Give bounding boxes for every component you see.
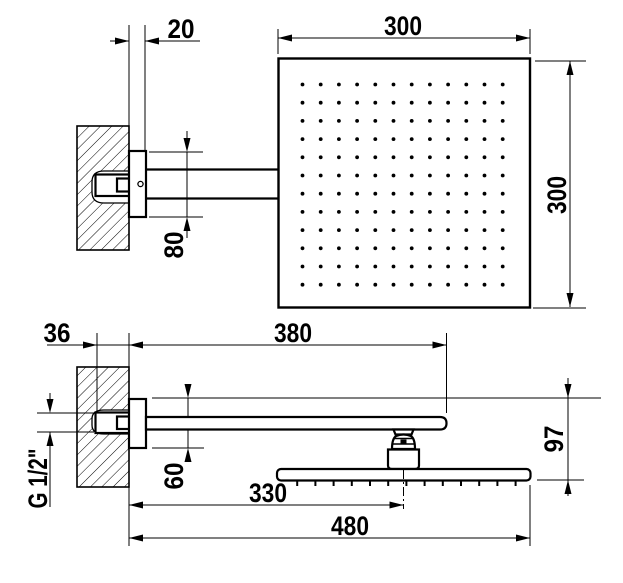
nozzle-dot	[428, 283, 432, 287]
nozzle-dot	[392, 155, 396, 159]
nozzle-dot	[446, 283, 450, 287]
nozzle-dot	[428, 265, 432, 269]
nozzle-dot	[301, 192, 305, 196]
nozzle-dot	[355, 283, 359, 287]
nozzle-dot	[355, 83, 359, 87]
technical-drawing: 20 300 300 80	[0, 0, 623, 578]
nozzle-dot	[355, 174, 359, 178]
nozzle-dot	[373, 246, 377, 250]
nozzle-dot	[483, 192, 487, 196]
nozzle-dot	[464, 246, 468, 250]
nozzle-dot	[319, 137, 323, 141]
nozzle-dot	[483, 283, 487, 287]
nozzle-dot	[337, 192, 341, 196]
nozzle-dot	[319, 210, 323, 214]
nozzle-dot	[373, 155, 377, 159]
nozzle-dot	[301, 101, 305, 105]
nozzle-dot	[483, 210, 487, 214]
nozzle-dot	[337, 174, 341, 178]
nozzle-dot	[501, 210, 505, 214]
nozzle-dot	[392, 283, 396, 287]
nozzle-dot	[464, 119, 468, 123]
nozzle-dot	[501, 283, 505, 287]
nozzle-dot	[446, 119, 450, 123]
nozzle-dot	[355, 228, 359, 232]
nozzle-dot	[319, 119, 323, 123]
nozzle-dot	[319, 283, 323, 287]
nozzle-dot	[428, 119, 432, 123]
nozzle-dot	[464, 137, 468, 141]
nozzle-dot	[337, 265, 341, 269]
nozzle-dot	[446, 174, 450, 178]
nozzle-dot	[501, 265, 505, 269]
nozzle-dot	[446, 192, 450, 196]
nozzle-dot	[337, 246, 341, 250]
nozzle-dot	[501, 228, 505, 232]
nozzle-dot	[355, 119, 359, 123]
nozzle-dot	[483, 246, 487, 250]
nozzle-dot	[355, 137, 359, 141]
nozzle-dot	[355, 246, 359, 250]
nozzle-dot	[483, 228, 487, 232]
dim-label-head-width: 300	[384, 11, 422, 41]
dim-label-total-reach: 480	[331, 511, 369, 541]
nozzle-dot	[410, 265, 414, 269]
nozzle-dot	[483, 83, 487, 87]
dim-escutcheon-width: 80	[149, 131, 203, 259]
nozzle-dot	[410, 101, 414, 105]
nozzle-dot	[483, 155, 487, 159]
nozzle-dot	[483, 101, 487, 105]
nozzle-dot	[373, 101, 377, 105]
nozzle-dot	[483, 265, 487, 269]
nozzle-dot	[446, 137, 450, 141]
nozzle-dot	[337, 228, 341, 232]
dim-head-height: 300	[533, 61, 586, 308]
nozzle-dot	[446, 101, 450, 105]
nozzle-dot	[483, 174, 487, 178]
nozzle-dot	[373, 119, 377, 123]
nozzle-dot	[392, 174, 396, 178]
nozzle-dot	[319, 265, 323, 269]
nozzle-dot	[501, 174, 505, 178]
nozzle-dot	[319, 228, 323, 232]
nozzle-dot	[373, 192, 377, 196]
nozzle-dot	[373, 83, 377, 87]
nozzle-dot	[464, 228, 468, 232]
nozzle-dot	[464, 155, 468, 159]
swivel-connector	[388, 430, 419, 470]
nozzle-dot	[301, 174, 305, 178]
dim-label-thread: G 1/2"	[23, 449, 53, 509]
dim-escutcheon-height: 60	[152, 384, 204, 490]
escutcheon-screw	[138, 181, 143, 186]
nozzle-dot	[464, 283, 468, 287]
nozzle-dot	[410, 210, 414, 214]
nozzle-dot	[446, 155, 450, 159]
nozzle-dot	[301, 137, 305, 141]
nozzle-dot	[301, 155, 305, 159]
nozzle-dot	[355, 210, 359, 214]
nozzle-dot	[410, 283, 414, 287]
nozzle-dot	[428, 137, 432, 141]
nozzle-dot	[337, 210, 341, 214]
nozzle-dot	[428, 210, 432, 214]
top-view: 20 300 300 80	[77, 11, 586, 308]
nozzle-dot	[337, 101, 341, 105]
nozzle-dot	[355, 192, 359, 196]
nozzle-dot	[446, 83, 450, 87]
nozzle-dot	[392, 119, 396, 123]
nozzle-dot	[446, 246, 450, 250]
nozzle-dot	[319, 246, 323, 250]
nozzle-dot	[501, 101, 505, 105]
nozzle-dot	[301, 210, 305, 214]
nozzle-dot	[410, 137, 414, 141]
nozzle-dot	[319, 155, 323, 159]
dim-total-reach: 480	[129, 485, 530, 546]
dim-label-wall-offset: 20	[168, 14, 195, 44]
nozzle-dot	[410, 155, 414, 159]
nozzle-dot	[301, 265, 305, 269]
nozzle-dot	[319, 174, 323, 178]
nozzle-dot	[464, 192, 468, 196]
nozzle-dot	[410, 174, 414, 178]
side-view: 36 380 60 G 1/2"	[23, 318, 601, 546]
dim-label-drop-height: 97	[539, 426, 569, 453]
nozzle-dot	[428, 83, 432, 87]
dim-label-recess-depth: 36	[44, 318, 71, 348]
supply-fitting-end-top	[117, 179, 130, 192]
nozzle-dot	[464, 174, 468, 178]
nozzle-dot	[501, 137, 505, 141]
nozzle-dot	[392, 101, 396, 105]
nozzle-dot	[319, 101, 323, 105]
nozzle-dot	[373, 210, 377, 214]
nozzle-dot	[483, 119, 487, 123]
nozzle-dot	[410, 192, 414, 196]
shower-arm-side	[146, 417, 447, 430]
nozzle-dot	[464, 265, 468, 269]
shower-head-face	[279, 59, 531, 308]
nozzle-dot	[464, 101, 468, 105]
dim-label-head-height: 300	[542, 176, 572, 214]
nozzle-dot	[501, 119, 505, 123]
nozzle-dot	[392, 210, 396, 214]
nozzle-dot	[337, 155, 341, 159]
nozzle-dot	[301, 246, 305, 250]
nozzle-dot	[501, 246, 505, 250]
nozzle-dot	[501, 192, 505, 196]
shower-arm-top	[146, 170, 279, 199]
nozzle-dot	[337, 283, 341, 287]
escutcheon-side	[129, 399, 146, 448]
nozzle-dot	[428, 101, 432, 105]
nozzle-dot	[355, 265, 359, 269]
nozzle-dot	[501, 155, 505, 159]
nozzle-dot	[428, 246, 432, 250]
dim-label-center-offset: 330	[249, 478, 287, 508]
dim-drop-height: 97	[537, 378, 584, 496]
nozzle-dot	[319, 83, 323, 87]
nozzle-dot	[337, 119, 341, 123]
nozzle-dot	[337, 137, 341, 141]
nozzle-dot	[410, 246, 414, 250]
nozzle-dot	[301, 83, 305, 87]
nozzle-dot	[301, 228, 305, 232]
nozzle-dot	[301, 119, 305, 123]
nozzle-dot	[501, 83, 505, 87]
nozzle-dot	[410, 83, 414, 87]
nozzle-dot	[446, 228, 450, 232]
nozzle-dot	[464, 210, 468, 214]
nozzle-dot	[483, 137, 487, 141]
nozzle-dot	[392, 192, 396, 196]
nozzle-dot	[319, 192, 323, 196]
nozzle-dot	[355, 101, 359, 105]
nozzle-dot	[392, 246, 396, 250]
nozzle-dot	[373, 174, 377, 178]
nozzle-dot	[355, 155, 359, 159]
nozzle-dot	[410, 228, 414, 232]
nozzle-dot	[464, 83, 468, 87]
nozzle-dot	[446, 210, 450, 214]
dim-label-escutcheon-height: 60	[159, 463, 189, 490]
nozzle-dot	[446, 265, 450, 269]
nozzle-dot	[410, 119, 414, 123]
ball-joint-detail	[401, 440, 407, 445]
nozzle-dot	[373, 265, 377, 269]
nozzle-dot	[428, 155, 432, 159]
nozzle-dot	[392, 228, 396, 232]
dim-label-arm-length: 380	[274, 318, 312, 348]
nozzle-dot	[301, 283, 305, 287]
nozzle-dot	[392, 83, 396, 87]
nozzle-dot	[392, 265, 396, 269]
dim-label-escutcheon-width: 80	[159, 232, 189, 259]
dim-head-width: 300	[278, 11, 530, 54]
nozzle-dot	[428, 192, 432, 196]
connector-body	[388, 450, 419, 470]
nozzle-dot	[373, 137, 377, 141]
drawing-page: 20 300 300 80	[0, 0, 623, 578]
nozzle-dot	[392, 137, 396, 141]
nozzle-dot	[373, 228, 377, 232]
supply-fitting-end-side	[117, 417, 130, 430]
nozzle-dot	[428, 228, 432, 232]
nozzle-dot	[428, 174, 432, 178]
nozzle-dot	[337, 83, 341, 87]
nozzle-dot	[373, 283, 377, 287]
